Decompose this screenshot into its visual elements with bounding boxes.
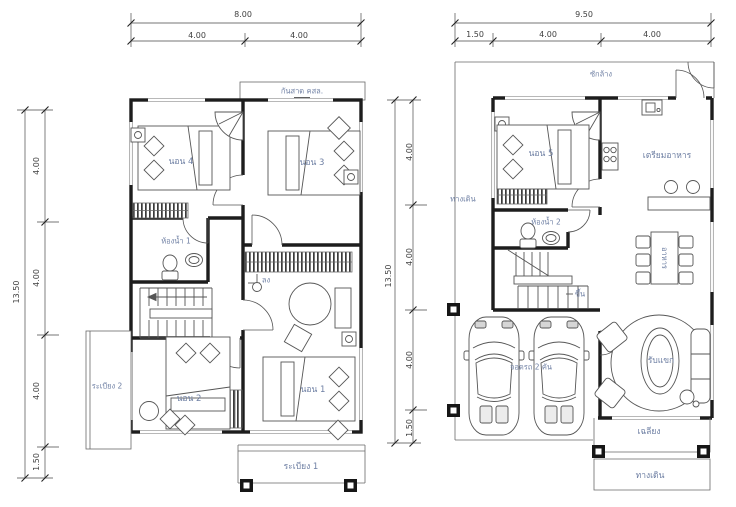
room-label-balcony1: ระเบียง 1 xyxy=(284,463,319,472)
stair-label-down: ลง xyxy=(262,276,270,284)
room-label-bath1: ห้องน้ำ 1 xyxy=(161,237,191,245)
column xyxy=(344,479,357,492)
nightstand xyxy=(131,128,145,142)
dim-right-seg: 4.00 xyxy=(643,31,661,39)
column xyxy=(447,404,460,417)
room-label-carport: จอดรถ 2 คัน xyxy=(510,363,552,371)
room-label-kitchen: เตรียมอาหาร xyxy=(643,152,691,161)
room-label-bedroom1: นอน 1 xyxy=(301,386,326,395)
room-label-bath2: ห้องน้ำ 2 xyxy=(531,218,561,226)
toilet xyxy=(162,255,178,280)
room-label-balcony2: ระเบียง 2 xyxy=(92,382,123,390)
dim-right-seg: 1.50 xyxy=(466,31,484,39)
room-label-laundry: ซักล้าง xyxy=(590,70,612,78)
room-label-porch: เฉลียง xyxy=(637,428,660,437)
column xyxy=(592,445,605,458)
staircase-up xyxy=(508,250,588,308)
room-label-bedroom2: นอน 2 xyxy=(177,395,202,404)
dim-right-seg: 4.00 xyxy=(406,143,414,161)
room-label-dining: อาหาร xyxy=(660,247,668,269)
toilet xyxy=(520,223,536,248)
room-label-bedroom3: นอน 3 xyxy=(300,159,325,168)
sink xyxy=(543,232,560,245)
room-label-living: รับแขก xyxy=(648,357,674,366)
dim-right-seg: 4.00 xyxy=(406,248,414,266)
dim-right-total-width: 9.50 xyxy=(575,11,593,19)
dim-left-seg: 4.00 xyxy=(33,269,41,287)
column xyxy=(697,445,710,458)
floor-plan-drawing xyxy=(0,0,736,507)
room-label-walkway-left: ทางเดิน xyxy=(450,195,475,203)
nightstand xyxy=(344,170,358,184)
stair-label-up: ขึ้น xyxy=(575,290,585,298)
room-label-canopy: กันสาด คสล. xyxy=(281,87,323,95)
floor-plan-page: 8.00 4.00 4.00 13.50 4.00 4.00 4.00 1.50… xyxy=(0,0,736,507)
sink xyxy=(186,254,203,267)
dim-right-seg: 4.00 xyxy=(539,31,557,39)
dim-right-total-height: 13.50 xyxy=(385,265,393,288)
column xyxy=(240,479,253,492)
dim-left-seg: 4.00 xyxy=(33,157,41,175)
room-label-bedroom4: นอน 4 xyxy=(169,158,194,167)
left-plan xyxy=(86,82,365,492)
room-label-walkway-bottom: ทางเดิน xyxy=(636,472,665,481)
car xyxy=(464,317,524,435)
room-label-bedroom5: นอน 5 xyxy=(529,150,554,159)
car xyxy=(529,317,589,435)
dim-left-total-width: 8.00 xyxy=(234,11,252,19)
column xyxy=(447,303,460,316)
dim-left-seg: 4.00 xyxy=(33,382,41,400)
dim-left-seg: 1.50 xyxy=(33,453,41,471)
dim-left-seg: 4.00 xyxy=(188,32,206,40)
dim-left-total-height: 13.50 xyxy=(13,281,21,304)
dim-right-seg: 1.50 xyxy=(406,419,414,437)
nightstand xyxy=(342,332,356,346)
dim-left-seg: 4.00 xyxy=(290,32,308,40)
dim-right-seg: 4.00 xyxy=(406,351,414,369)
right-plan xyxy=(447,62,714,490)
